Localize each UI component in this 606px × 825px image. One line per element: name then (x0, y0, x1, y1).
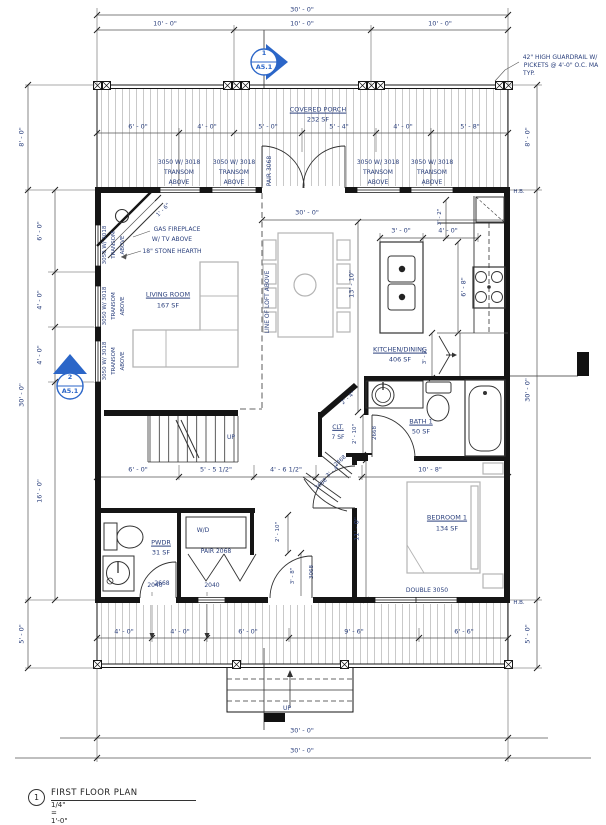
drawing-title: FIRST FLOOR PLAN (51, 788, 196, 801)
exterior-walls (95, 187, 510, 603)
covered-porch (97, 85, 508, 187)
guardrail-leader (495, 62, 519, 81)
section-arrow-icon (53, 354, 87, 374)
bedroom-furniture (407, 463, 503, 588)
powder-fixtures (103, 517, 246, 591)
doors (140, 146, 508, 605)
section-marker-2[interactable]: 2 A5.1 (44, 352, 96, 404)
section-number: 2 (55, 373, 85, 381)
section-marker-1[interactable]: 1 A5.1 (240, 36, 292, 88)
loft-line (240, 193, 262, 409)
kitchen-fixtures (380, 196, 505, 333)
bath-fixtures (366, 380, 505, 456)
detail-number-bubble: 1 (28, 789, 45, 806)
exterior-steps (227, 667, 353, 712)
section-number: 1 (249, 49, 279, 57)
section-sheet: A5.1 (249, 63, 279, 71)
drawing-scale: 1/4" = 1'-0" (51, 801, 68, 825)
living-furniture (133, 262, 238, 367)
floor-plan-drawing (0, 0, 606, 825)
floor-plan-sheet: 1 A5.1 2 A5.1 1 FIRST FLOOR PLAN 1/4" = … (0, 0, 606, 825)
rear-deck (97, 603, 508, 668)
stairs (148, 416, 238, 462)
dining-furniture (263, 233, 350, 337)
section-sheet: A5.1 (55, 387, 85, 395)
